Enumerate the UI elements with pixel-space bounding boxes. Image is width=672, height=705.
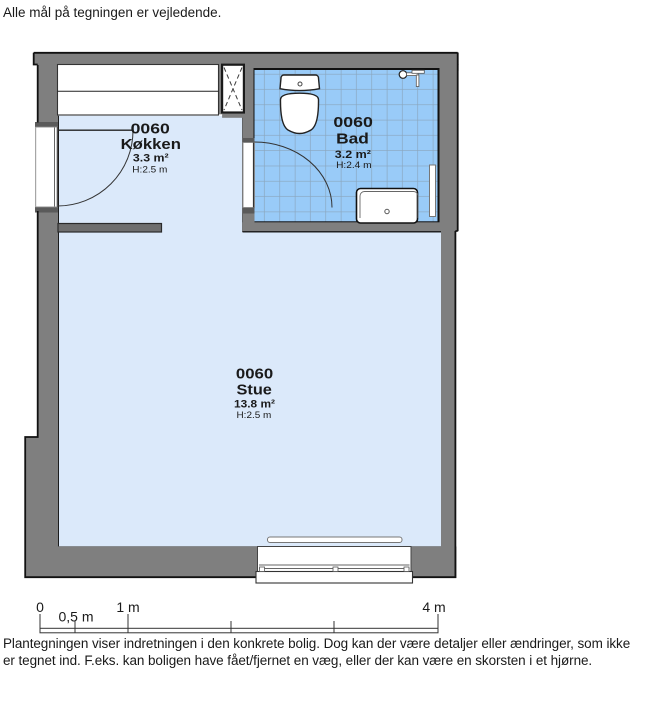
svg-text:0060: 0060	[333, 114, 373, 131]
svg-text:H:2.5 m: H:2.5 m	[237, 410, 272, 421]
svg-text:13.8 m²: 13.8 m²	[234, 399, 275, 411]
svg-text:0,5 m: 0,5 m	[58, 609, 93, 625]
svg-text:Bad: Bad	[336, 130, 369, 147]
svg-text:3.3 m²: 3.3 m²	[133, 153, 169, 165]
svg-text:0060: 0060	[236, 366, 273, 383]
svg-text:1 m: 1 m	[116, 599, 139, 615]
svg-text:4 m: 4 m	[422, 599, 445, 615]
svg-text:Stue: Stue	[237, 381, 272, 398]
svg-text:H:2.5 m: H:2.5 m	[132, 165, 167, 176]
svg-text:Køkken: Køkken	[121, 136, 181, 153]
svg-text:0060: 0060	[131, 120, 170, 137]
svg-text:H:2.4 m: H:2.4 m	[336, 160, 372, 171]
svg-text:3.2 m²: 3.2 m²	[335, 149, 371, 161]
svg-text:0: 0	[36, 599, 44, 615]
